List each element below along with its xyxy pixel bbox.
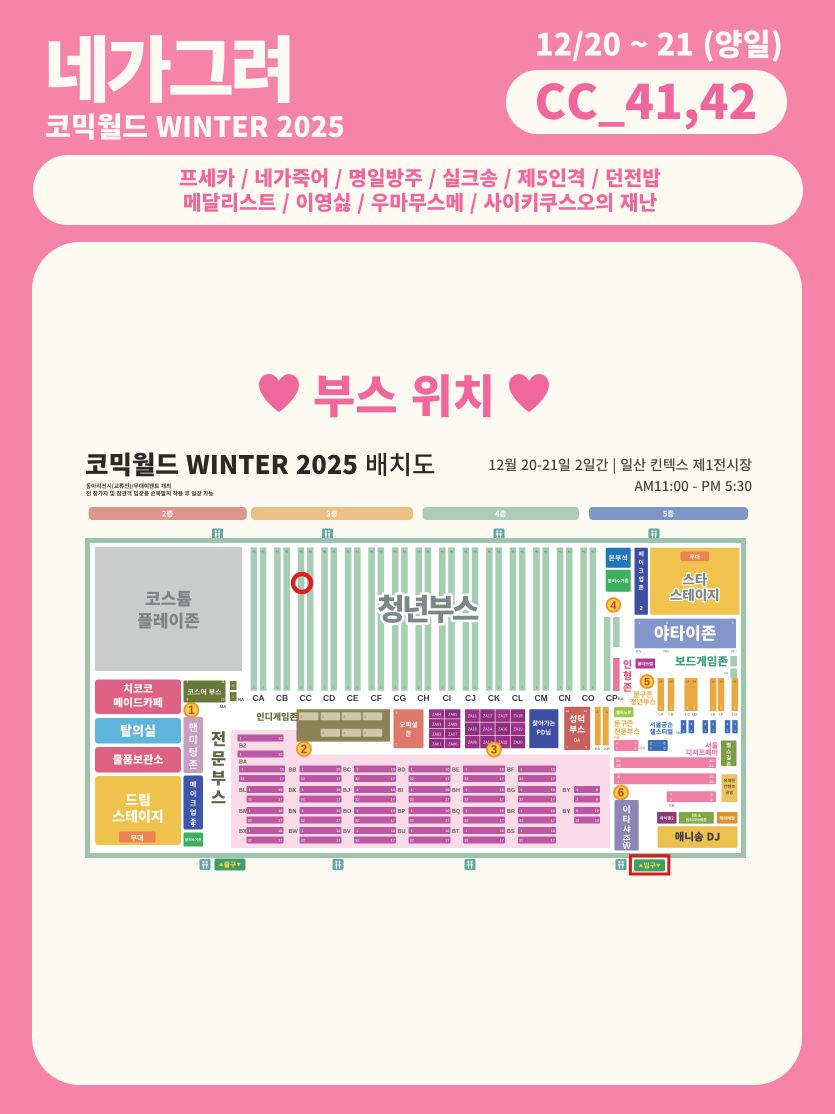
svg-text:BN: BN: [289, 809, 297, 815]
svg-text:16: 16: [551, 829, 555, 833]
svg-text:46: 46: [450, 550, 454, 554]
svg-text:32: 32: [464, 777, 468, 781]
svg-text:17: 17: [391, 819, 395, 823]
svg-text:17: 17: [500, 777, 504, 781]
svg-text:14: 14: [686, 680, 690, 684]
svg-text:KA: KA: [595, 746, 601, 751]
svg-text:5: 5: [664, 747, 666, 751]
svg-text:73: 73: [725, 658, 729, 662]
svg-text:1: 1: [241, 768, 243, 772]
svg-text:4: 4: [616, 742, 618, 746]
svg-text:32: 32: [248, 819, 252, 823]
svg-text:LB: LB: [669, 712, 674, 717]
svg-text:CC: CC: [299, 693, 311, 703]
svg-text:16: 16: [391, 788, 395, 792]
svg-text:11: 11: [221, 680, 225, 684]
svg-text:17: 17: [500, 839, 504, 843]
svg-text:16: 16: [551, 809, 555, 813]
svg-text:1: 1: [356, 768, 358, 772]
svg-text:BJ: BJ: [343, 788, 350, 794]
svg-text:10: 10: [584, 709, 588, 713]
svg-text:5: 5: [644, 676, 650, 688]
svg-text:12: 12: [278, 737, 282, 741]
svg-text:BY: BY: [563, 809, 571, 815]
svg-text:1: 1: [520, 809, 522, 813]
svg-text:46: 46: [370, 550, 374, 554]
svg-text:16: 16: [391, 809, 395, 813]
svg-text:16: 16: [551, 768, 555, 772]
svg-text:BP: BP: [398, 809, 406, 815]
svg-text:46: 46: [417, 550, 421, 554]
svg-text:17: 17: [445, 839, 449, 843]
svg-text:19: 19: [221, 698, 225, 702]
svg-text:46: 46: [285, 550, 289, 554]
svg-text:46: 46: [441, 550, 445, 554]
svg-text:17: 17: [336, 839, 340, 843]
svg-text:1: 1: [650, 747, 652, 751]
svg-text:1: 1: [411, 809, 413, 813]
svg-text:RB: RB: [663, 649, 669, 654]
svg-text:46: 46: [558, 550, 562, 554]
svg-text:BO: BO: [343, 809, 352, 815]
svg-text:17: 17: [280, 777, 284, 781]
svg-text:32: 32: [519, 839, 523, 843]
svg-text:LE: LE: [711, 712, 716, 717]
svg-text:CL: CL: [512, 693, 523, 703]
svg-text:46: 46: [473, 550, 477, 554]
svg-text:32: 32: [301, 839, 305, 843]
svg-text:46: 46: [591, 550, 595, 554]
svg-text:BC: BC: [343, 767, 351, 773]
svg-text:32: 32: [519, 819, 523, 823]
svg-text:32: 32: [248, 839, 252, 843]
svg-text:BT: BT: [452, 829, 460, 835]
svg-text:46: 46: [379, 550, 383, 554]
svg-text:32: 32: [301, 819, 305, 823]
svg-text:40: 40: [709, 759, 713, 763]
svg-text:46: 46: [276, 550, 280, 554]
svg-text:46: 46: [582, 550, 586, 554]
svg-text:BY: BY: [563, 788, 571, 794]
svg-text:1: 1: [576, 788, 578, 792]
svg-text:BL: BL: [239, 788, 247, 794]
svg-text:CP: CP: [606, 693, 618, 703]
svg-text:1: 1: [187, 680, 189, 684]
svg-text:16: 16: [445, 809, 449, 813]
svg-text:16: 16: [336, 768, 340, 772]
svg-text:32: 32: [355, 777, 359, 781]
svg-text:CE: CE: [347, 693, 359, 703]
svg-text:1: 1: [302, 829, 304, 833]
svg-text:FB: FB: [614, 736, 619, 740]
svg-text:CK: CK: [488, 693, 501, 703]
svg-text:29: 29: [616, 764, 620, 768]
svg-text:1: 1: [240, 737, 242, 741]
svg-text:8: 8: [710, 793, 712, 797]
svg-text:8: 8: [596, 798, 598, 802]
svg-text:16: 16: [500, 809, 504, 813]
svg-text:46: 46: [252, 550, 256, 554]
svg-text:17: 17: [551, 819, 555, 823]
svg-text:BF: BF: [507, 767, 515, 773]
svg-text:LD: LD: [692, 712, 697, 717]
svg-text:16: 16: [445, 768, 449, 772]
svg-text:32: 32: [519, 777, 523, 781]
svg-text:CM: CM: [534, 693, 547, 703]
svg-text:1: 1: [302, 809, 304, 813]
svg-text:CA: CA: [252, 693, 264, 703]
svg-text:BR: BR: [507, 809, 515, 815]
svg-text:46: 46: [535, 550, 539, 554]
svg-text:46: 46: [464, 550, 468, 554]
svg-text:EA: EA: [618, 696, 624, 701]
svg-text:16: 16: [500, 829, 504, 833]
svg-text:32: 32: [301, 777, 305, 781]
svg-text:12: 12: [595, 809, 599, 813]
svg-text:BG: BG: [507, 788, 515, 794]
svg-text:16: 16: [391, 829, 395, 833]
svg-text:32: 32: [410, 839, 414, 843]
svg-text:14: 14: [669, 680, 673, 684]
svg-text:16: 16: [278, 788, 282, 792]
svg-text:17: 17: [445, 819, 449, 823]
svg-text:9: 9: [232, 684, 234, 688]
svg-text:1: 1: [639, 621, 641, 625]
svg-text:46: 46: [497, 550, 501, 554]
svg-text:8: 8: [596, 788, 598, 792]
svg-text:32: 32: [464, 798, 468, 802]
svg-text:17: 17: [391, 777, 395, 781]
svg-text:46: 46: [346, 550, 350, 554]
svg-text:4: 4: [610, 600, 617, 612]
svg-text:1: 1: [465, 768, 467, 772]
svg-text:17: 17: [336, 798, 340, 802]
svg-text:FB: FB: [669, 804, 674, 808]
svg-text:32: 32: [464, 819, 468, 823]
svg-text:CI: CI: [443, 693, 452, 703]
svg-text:32: 32: [410, 819, 414, 823]
svg-text:12: 12: [278, 753, 282, 757]
svg-text:17: 17: [391, 798, 395, 802]
svg-text:1: 1: [302, 768, 304, 772]
svg-text:32: 32: [519, 798, 523, 802]
svg-text:BD: BD: [398, 767, 406, 773]
svg-text:1: 1: [356, 829, 358, 833]
svg-text:14: 14: [733, 680, 737, 684]
svg-text:46: 46: [568, 550, 572, 554]
svg-text:9: 9: [732, 621, 734, 625]
svg-text:32: 32: [355, 839, 359, 843]
svg-text:6: 6: [710, 798, 712, 802]
svg-text:1: 1: [411, 829, 413, 833]
svg-text:32: 32: [301, 798, 305, 802]
svg-text:BI: BI: [398, 788, 404, 794]
svg-text:17: 17: [551, 839, 555, 843]
svg-text:46: 46: [511, 550, 515, 554]
svg-text:1: 1: [356, 809, 358, 813]
svg-text:LC: LC: [685, 712, 690, 717]
svg-text:17: 17: [336, 819, 340, 823]
svg-text:1: 1: [616, 747, 618, 751]
svg-text:17: 17: [278, 839, 282, 843]
svg-text:CH: CH: [417, 693, 429, 703]
svg-text:17: 17: [445, 777, 449, 781]
svg-text:1: 1: [465, 829, 467, 833]
svg-text:41: 41: [709, 764, 713, 768]
svg-text:16: 16: [566, 709, 570, 713]
svg-text:LA: LA: [658, 712, 663, 717]
svg-text:46: 46: [261, 550, 265, 554]
svg-text:16: 16: [551, 788, 555, 792]
svg-text:1: 1: [302, 788, 304, 792]
svg-text:DA: DA: [574, 738, 580, 743]
svg-text:GA: GA: [639, 746, 645, 750]
svg-text:BK: BK: [289, 788, 297, 794]
svg-text:16: 16: [336, 829, 340, 833]
svg-text:BQ: BQ: [452, 809, 461, 815]
svg-text:1: 1: [188, 705, 195, 717]
svg-text:17: 17: [445, 798, 449, 802]
svg-text:16: 16: [336, 788, 340, 792]
svg-text:1: 1: [617, 780, 619, 784]
svg-text:LG: LG: [732, 712, 737, 717]
svg-text:BW: BW: [289, 829, 299, 835]
svg-text:24: 24: [616, 759, 620, 763]
svg-text:2: 2: [650, 742, 652, 746]
svg-text:2: 2: [640, 606, 643, 612]
svg-text:17: 17: [336, 777, 340, 781]
svg-text:46: 46: [488, 550, 492, 554]
svg-text:17: 17: [278, 798, 282, 802]
svg-text:1: 1: [411, 788, 413, 792]
svg-text:46: 46: [323, 550, 327, 554]
svg-text:32: 32: [355, 819, 359, 823]
svg-text:BV: BV: [343, 829, 351, 835]
svg-text:32: 32: [464, 839, 468, 843]
svg-text:RA: RA: [636, 649, 642, 654]
svg-text:46: 46: [309, 550, 313, 554]
svg-text:W: W: [623, 841, 632, 851]
svg-text:16: 16: [278, 829, 282, 833]
svg-text:46: 46: [403, 550, 407, 554]
svg-text:46: 46: [394, 550, 398, 554]
svg-text:MA: MA: [220, 704, 227, 709]
svg-text:46: 46: [356, 550, 360, 554]
svg-text:16: 16: [391, 768, 395, 772]
svg-text:LF: LF: [719, 712, 724, 717]
svg-text:26: 26: [709, 775, 713, 779]
svg-text:BB: BB: [289, 767, 297, 773]
svg-text:16: 16: [500, 768, 504, 772]
svg-text:16: 16: [445, 829, 449, 833]
svg-text:16: 16: [445, 788, 449, 792]
svg-text:16: 16: [336, 809, 340, 813]
svg-text:1: 1: [670, 798, 672, 802]
svg-text:17: 17: [551, 798, 555, 802]
svg-text:1: 1: [520, 829, 522, 833]
svg-text:9: 9: [576, 809, 578, 813]
svg-text:46: 46: [332, 550, 336, 554]
svg-text:1: 1: [249, 788, 251, 792]
svg-text:8: 8: [396, 711, 398, 715]
svg-text:7: 7: [635, 742, 637, 746]
svg-text:RC: RC: [731, 649, 737, 654]
svg-text:32: 32: [248, 798, 252, 802]
svg-text:2: 2: [301, 744, 307, 756]
svg-text:5: 5: [666, 621, 668, 625]
svg-text:46: 46: [426, 550, 430, 554]
svg-text:25: 25: [709, 780, 713, 784]
svg-text:BS: BS: [507, 829, 515, 835]
svg-text:14: 14: [659, 680, 663, 684]
svg-text:46: 46: [299, 550, 303, 554]
svg-text:1: 1: [356, 788, 358, 792]
svg-text:17: 17: [500, 819, 504, 823]
svg-text:KB: KB: [604, 746, 610, 751]
svg-text:BX: BX: [239, 829, 247, 835]
svg-text:17: 17: [278, 819, 282, 823]
svg-text:CN: CN: [559, 693, 571, 703]
svg-text:1: 1: [249, 829, 251, 833]
svg-text:CF: CF: [371, 693, 382, 703]
svg-text:CG: CG: [393, 693, 406, 703]
svg-text:BU: BU: [398, 829, 406, 835]
svg-text:17: 17: [551, 777, 555, 781]
svg-text:14: 14: [719, 680, 723, 684]
svg-text:BZ: BZ: [239, 744, 247, 750]
svg-text:8: 8: [617, 775, 619, 779]
svg-text:NA: NA: [238, 697, 244, 702]
svg-text:16: 16: [500, 788, 504, 792]
svg-text:17: 17: [500, 798, 504, 802]
svg-text:1: 1: [465, 809, 467, 813]
svg-text:32: 32: [240, 777, 244, 781]
svg-text:3: 3: [491, 745, 497, 757]
svg-text:CB: CB: [276, 693, 288, 703]
svg-text:14: 14: [693, 680, 697, 684]
svg-text:CJ: CJ: [465, 693, 476, 703]
svg-text:7: 7: [670, 793, 672, 797]
svg-text:6: 6: [664, 742, 666, 746]
svg-text:16: 16: [278, 809, 282, 813]
svg-text:9: 9: [187, 698, 189, 702]
svg-text:13: 13: [595, 819, 599, 823]
svg-text:6: 6: [618, 788, 624, 800]
svg-text:BH: BH: [452, 788, 460, 794]
svg-text:BA: BA: [239, 759, 247, 765]
svg-text:CO: CO: [582, 693, 595, 703]
svg-text:1: 1: [232, 695, 234, 699]
svg-text:1: 1: [396, 743, 398, 747]
svg-text:32: 32: [410, 777, 414, 781]
svg-text:14: 14: [711, 680, 715, 684]
svg-text:32: 32: [410, 798, 414, 802]
svg-text:1: 1: [576, 798, 578, 802]
svg-text:1: 1: [465, 788, 467, 792]
svg-text:19: 19: [575, 819, 579, 823]
svg-text:CD: CD: [323, 693, 335, 703]
svg-text:1: 1: [240, 753, 242, 757]
svg-text:1: 1: [520, 788, 522, 792]
svg-text:16: 16: [280, 768, 284, 772]
svg-text:17: 17: [391, 839, 395, 843]
svg-text:32: 32: [355, 798, 359, 802]
svg-text:1: 1: [520, 768, 522, 772]
svg-text:1: 1: [249, 809, 251, 813]
svg-text:46: 46: [520, 550, 524, 554]
svg-text:46: 46: [544, 550, 548, 554]
svg-text:8: 8: [635, 747, 637, 751]
svg-text:1: 1: [411, 768, 413, 772]
svg-text:BE: BE: [452, 767, 460, 773]
